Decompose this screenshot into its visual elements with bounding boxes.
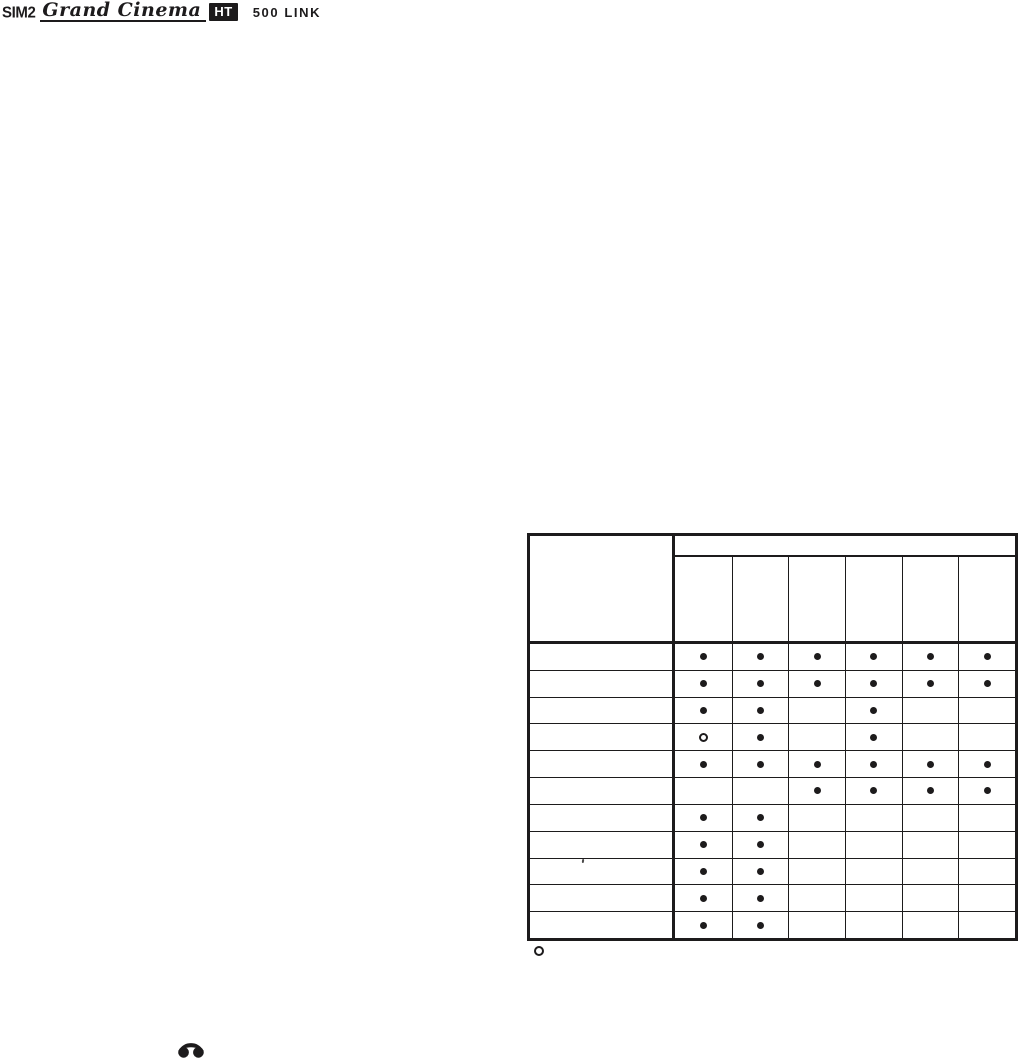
- matrix-cell: [902, 724, 959, 750]
- column-header-cell: [958, 557, 1015, 641]
- column-header-row: [675, 557, 1015, 641]
- table-row: [530, 698, 1015, 725]
- filled-dot-icon: [757, 761, 764, 768]
- filled-dot-icon: [870, 653, 877, 660]
- filled-dot-icon: [870, 734, 877, 741]
- matrix-cell: [675, 724, 732, 750]
- matrix-cell: [958, 832, 1015, 858]
- filled-dot-icon: [870, 787, 877, 794]
- matrix-cell: [788, 805, 845, 831]
- matrix-cell: [675, 805, 732, 831]
- table-row: [530, 724, 1015, 751]
- matrix-cell: [732, 751, 789, 777]
- row-cells: [675, 698, 1015, 724]
- filled-dot-icon: [700, 841, 707, 848]
- matrix-cell: [845, 778, 902, 804]
- matrix-cell: [845, 644, 902, 670]
- row-cells: [675, 751, 1015, 777]
- matrix-cell: [902, 644, 959, 670]
- matrix-cell: [675, 859, 732, 885]
- table-row: [530, 805, 1015, 832]
- filled-dot-icon: [870, 707, 877, 714]
- matrix-cell: [902, 751, 959, 777]
- corner-header-cell: [530, 536, 675, 641]
- matrix-cell: [675, 671, 732, 697]
- matrix-cell: [732, 671, 789, 697]
- filled-dot-icon: [984, 761, 991, 768]
- filled-dot-icon: [700, 680, 707, 687]
- matrix-cell: [902, 912, 959, 938]
- matrix-cell: [958, 724, 1015, 750]
- matrix-cell: [845, 885, 902, 911]
- matrix-cell: [788, 912, 845, 938]
- header-columns-area: [675, 536, 1015, 641]
- filled-dot-icon: [927, 680, 934, 687]
- row-label-cell: [530, 751, 675, 777]
- row-label-cell: [530, 644, 675, 670]
- row-cells: [675, 859, 1015, 885]
- filled-dot-icon: [984, 680, 991, 687]
- matrix-body: [530, 644, 1015, 938]
- matrix-cell: [732, 859, 789, 885]
- matrix-cell: [732, 885, 789, 911]
- matrix-cell: [675, 778, 732, 804]
- filled-dot-icon: [814, 653, 821, 660]
- filled-dot-icon: [927, 787, 934, 794]
- matrix-cell: [958, 778, 1015, 804]
- matrix-cell: [902, 671, 959, 697]
- matrix-cell: [902, 832, 959, 858]
- column-header-cell: [902, 557, 959, 641]
- matrix-cell: [732, 698, 789, 724]
- matrix-cell: [675, 832, 732, 858]
- filled-dot-icon: [984, 653, 991, 660]
- row-cells: [675, 778, 1015, 804]
- table-row: [530, 778, 1015, 805]
- matrix-cell: [958, 885, 1015, 911]
- matrix-cell: [845, 859, 902, 885]
- matrix-cell: [958, 859, 1015, 885]
- matrix-cell: [732, 778, 789, 804]
- column-header-cell: [732, 557, 789, 641]
- matrix-cell: [788, 671, 845, 697]
- matrix-cell: [732, 644, 789, 670]
- row-label-cell: [530, 805, 675, 831]
- row-label-cell: [530, 832, 675, 858]
- brand-logo: SIM2 Grand Cinema HT 500 LINK: [2, 1, 321, 22]
- row-label-cell: [530, 885, 675, 911]
- table-row: [530, 885, 1015, 912]
- matrix-cell: [958, 644, 1015, 670]
- filled-dot-icon: [757, 841, 764, 848]
- filled-dot-icon: [757, 734, 764, 741]
- matrix-cell: [958, 751, 1015, 777]
- matrix-cell: [788, 724, 845, 750]
- filled-dot-icon: [757, 653, 764, 660]
- matrix-cell: [732, 832, 789, 858]
- group-header-cell: [675, 536, 1015, 557]
- filled-dot-icon: [700, 868, 707, 875]
- row-cells: [675, 724, 1015, 750]
- row-label-cell: [530, 698, 675, 724]
- filled-dot-icon: [927, 653, 934, 660]
- filled-dot-icon: [927, 761, 934, 768]
- matrix-cell: [902, 885, 959, 911]
- column-header-cell: [788, 557, 845, 641]
- table-row: [530, 671, 1015, 698]
- matrix-cell: [845, 698, 902, 724]
- matrix-cell: [845, 724, 902, 750]
- filled-dot-icon: [700, 707, 707, 714]
- row-label-cell: [530, 724, 675, 750]
- ht-badge: HT: [209, 3, 237, 21]
- matrix-cell: [675, 644, 732, 670]
- filled-dot-icon: [757, 868, 764, 875]
- row-cells: [675, 644, 1015, 670]
- filled-dot-icon: [757, 895, 764, 902]
- manual-page: SIM2 Grand Cinema HT 500 LINK: [0, 0, 1020, 1059]
- filled-dot-icon: [757, 707, 764, 714]
- table-row: [530, 859, 1015, 886]
- model-name: 500 LINK: [253, 5, 321, 20]
- matrix-cell: [675, 885, 732, 911]
- matrix-cell: [958, 912, 1015, 938]
- table-row: [530, 644, 1015, 671]
- matrix-cell: [788, 885, 845, 911]
- row-label-cell: [530, 778, 675, 804]
- matrix-cell: [958, 671, 1015, 697]
- series-name: Grand Cinema: [40, 1, 206, 22]
- filled-dot-icon: [984, 787, 991, 794]
- table-row: [530, 751, 1015, 778]
- matrix-cell: [788, 698, 845, 724]
- row-cells: [675, 912, 1015, 938]
- table-header: [530, 536, 1015, 644]
- filled-dot-icon: [757, 814, 764, 821]
- brand-name: SIM2: [2, 4, 35, 22]
- filled-dot-icon: [700, 814, 707, 821]
- open-circle-icon: [699, 733, 708, 742]
- matrix-cell: [732, 912, 789, 938]
- filled-dot-icon: [700, 895, 707, 902]
- matrix-cell: [958, 805, 1015, 831]
- phone-handset-icon: [178, 1042, 204, 1058]
- matrix-cell: [732, 805, 789, 831]
- filled-dot-icon: [700, 653, 707, 660]
- matrix-cell: [675, 751, 732, 777]
- row-cells: [675, 671, 1015, 697]
- row-cells: [675, 805, 1015, 831]
- table-row: [530, 832, 1015, 859]
- table-row: [530, 912, 1015, 938]
- filled-dot-icon: [814, 761, 821, 768]
- matrix-cell: [902, 778, 959, 804]
- filled-dot-icon: [814, 787, 821, 794]
- matrix-cell: [845, 912, 902, 938]
- row-cells: [675, 832, 1015, 858]
- matrix-cell: [788, 832, 845, 858]
- matrix-cell: [788, 751, 845, 777]
- matrix-cell: [845, 832, 902, 858]
- matrix-cell: [902, 805, 959, 831]
- column-header-cell: [845, 557, 902, 641]
- filled-dot-icon: [870, 680, 877, 687]
- row-label-cell: [530, 859, 675, 885]
- column-header-cell: [675, 557, 732, 641]
- filled-dot-icon: [814, 680, 821, 687]
- compatibility-table: [527, 533, 1018, 941]
- matrix-cell: [845, 671, 902, 697]
- filled-dot-icon: [700, 922, 707, 929]
- matrix-cell: [788, 644, 845, 670]
- open-circle-icon: [534, 946, 544, 956]
- matrix-cell: [675, 912, 732, 938]
- filled-dot-icon: [870, 761, 877, 768]
- matrix-cell: [845, 805, 902, 831]
- matrix-cell: [732, 724, 789, 750]
- matrix-cell: [675, 698, 732, 724]
- filled-dot-icon: [757, 922, 764, 929]
- row-label-cell: [530, 912, 675, 938]
- row-cells: [675, 885, 1015, 911]
- matrix-cell: [958, 698, 1015, 724]
- row-label-cell: [530, 671, 675, 697]
- filled-dot-icon: [700, 761, 707, 768]
- matrix-cell: [902, 698, 959, 724]
- matrix-cell: [788, 859, 845, 885]
- matrix-cell: [902, 859, 959, 885]
- matrix-cell: [788, 778, 845, 804]
- filled-dot-icon: [757, 680, 764, 687]
- matrix-cell: [845, 751, 902, 777]
